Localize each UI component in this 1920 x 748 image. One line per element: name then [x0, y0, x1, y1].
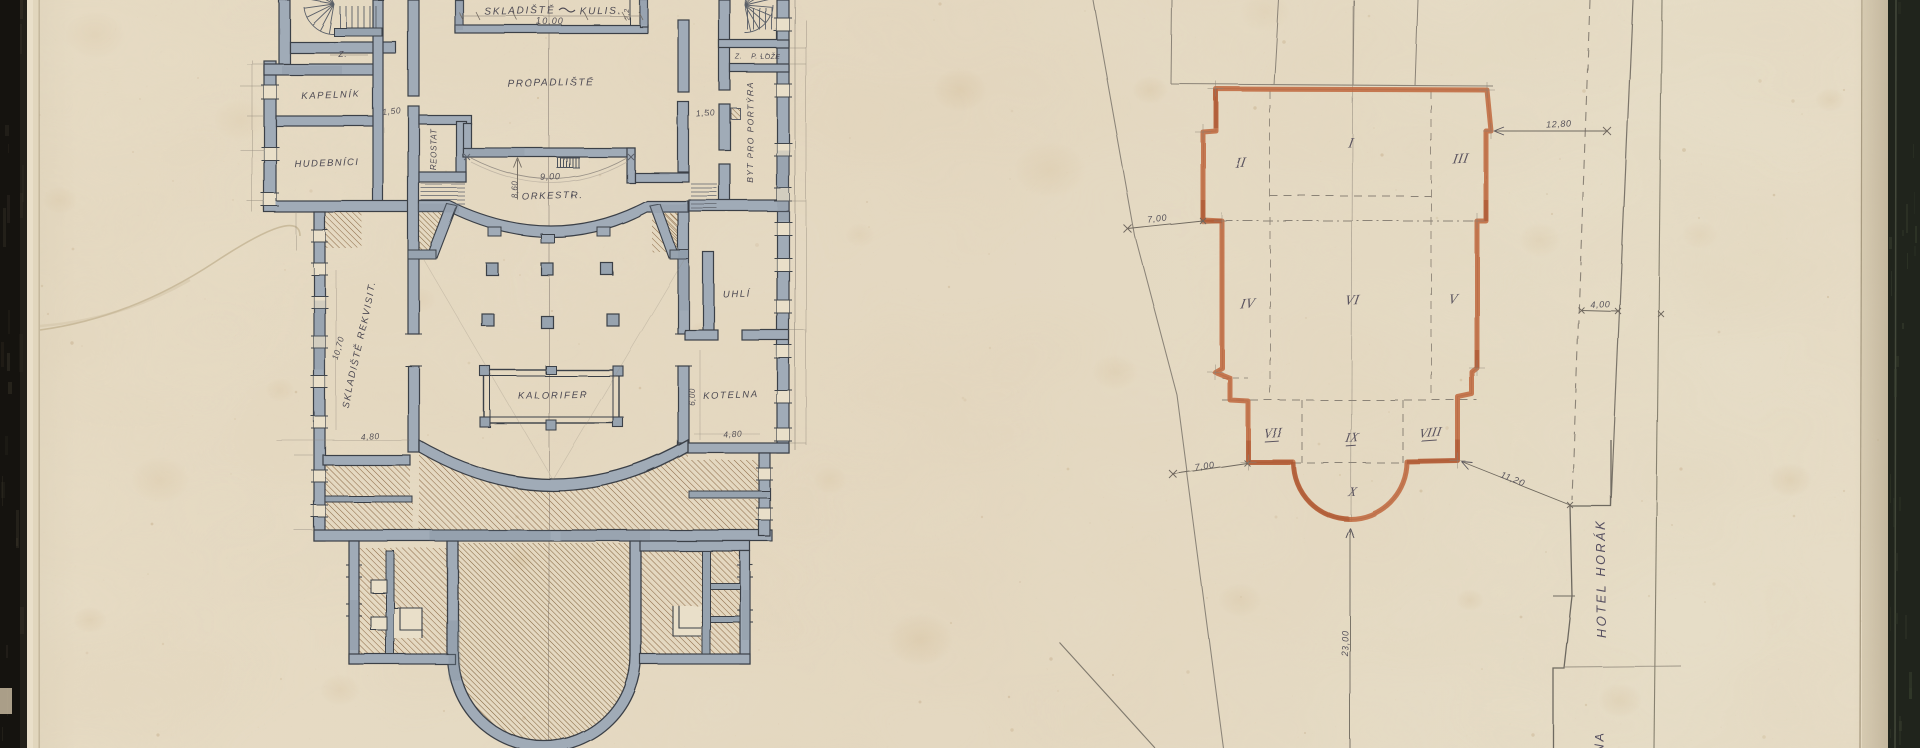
svg-text:Z.: Z. [337, 50, 347, 59]
svg-text:KAPELNÍK: KAPELNÍK [301, 89, 361, 102]
svg-text:1,50: 1,50 [382, 105, 402, 117]
svg-text:KALORIFER: KALORIFER [518, 389, 588, 401]
svg-text:VIII: VIII [1418, 424, 1444, 441]
svg-text:10,00: 10,00 [536, 16, 564, 26]
svg-text:Z.: Z. [734, 54, 742, 61]
svg-text:VII: VII [1262, 424, 1283, 440]
svg-text:HOTEL HORÁK: HOTEL HORÁK [1593, 519, 1608, 637]
svg-text:P. LOŽE: P. LOŽE [752, 52, 781, 61]
svg-text:6,00: 6,00 [688, 388, 697, 406]
svg-text:4,00: 4,00 [1590, 299, 1610, 310]
svg-text:23,00: 23,00 [1340, 630, 1350, 658]
svg-text:12,80: 12,80 [1546, 118, 1572, 129]
svg-text:BYT PRO PORTÝRA: BYT PRO PORTÝRA [745, 81, 755, 183]
svg-text:REOSTAT: REOSTAT [429, 128, 438, 171]
svg-text:8,60: 8,60 [511, 181, 520, 199]
svg-text:RNA: RNA [1593, 731, 1607, 748]
svg-text:KOTELNA: KOTELNA [703, 389, 759, 402]
svg-text:UHLÍ: UHLÍ [723, 289, 751, 301]
svg-text:9,00: 9,00 [540, 172, 561, 183]
svg-text:ORKESTR.: ORKESTR. [522, 190, 584, 203]
svg-text:HUDEBNÍCI: HUDEBNÍCI [294, 157, 359, 170]
svg-text:1,50: 1,50 [696, 107, 716, 119]
